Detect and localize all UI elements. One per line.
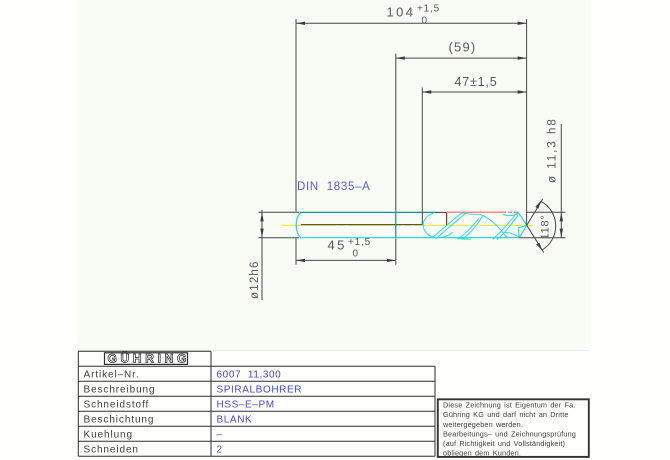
svg-text:+1,5: +1,5 <box>348 237 371 248</box>
svg-text:47±1,5: 47±1,5 <box>455 75 498 89</box>
svg-text:weitergegeben werden.: weitergegeben werden. <box>442 420 523 429</box>
svg-text:Schneidstoff: Schneidstoff <box>84 400 150 411</box>
svg-text:obliegen dem Kunden.: obliegen dem Kunden. <box>443 448 521 457</box>
svg-text:HSS–E–PM: HSS–E–PM <box>217 400 275 411</box>
svg-text:6007 11,300: 6007 11,300 <box>217 370 282 381</box>
svg-text:DIN 1835–A: DIN 1835–A <box>297 181 371 193</box>
svg-text:Bearbeitungs– und Zeichnungspr: Bearbeitungs– und Zeichnungsprüfung <box>443 429 576 438</box>
svg-text:Artikel–Nr.: Artikel–Nr. <box>84 370 140 381</box>
svg-text:SPIRALBOHRER: SPIRALBOHRER <box>217 385 303 396</box>
svg-text:(auf Richtigkeit und Vollständ: (auf Richtigkeit und Vollständigkeit) <box>443 439 565 448</box>
svg-text:Beschreibung: Beschreibung <box>84 385 156 396</box>
svg-text:+1,5: +1,5 <box>417 4 440 15</box>
svg-text:118°: 118° <box>540 214 552 239</box>
svg-text:–: – <box>217 430 223 441</box>
svg-text:ø 11,3 h8: ø 11,3 h8 <box>547 117 559 183</box>
svg-text:Beschichtung: Beschichtung <box>84 415 155 426</box>
svg-text:2: 2 <box>217 445 223 456</box>
svg-text:Gühring KG und darf nicht an D: Gühring KG und darf nicht an Dritte <box>443 410 569 419</box>
svg-text:(59): (59) <box>449 40 477 55</box>
svg-text:Schneiden: Schneiden <box>84 445 139 456</box>
svg-text:0: 0 <box>353 249 359 260</box>
svg-text:GÜHRING: GÜHRING <box>108 351 191 366</box>
svg-text:0: 0 <box>422 16 428 27</box>
svg-text:45: 45 <box>328 238 347 253</box>
svg-text:Kuehlung: Kuehlung <box>84 430 133 441</box>
svg-text:Diese Zeichnung ist Eigentum d: Diese Zeichnung ist Eigentum der Fa. <box>443 401 575 410</box>
svg-text:104: 104 <box>387 5 416 20</box>
svg-text:ø12h6: ø12h6 <box>249 260 261 299</box>
svg-text:BLANK: BLANK <box>217 415 253 426</box>
